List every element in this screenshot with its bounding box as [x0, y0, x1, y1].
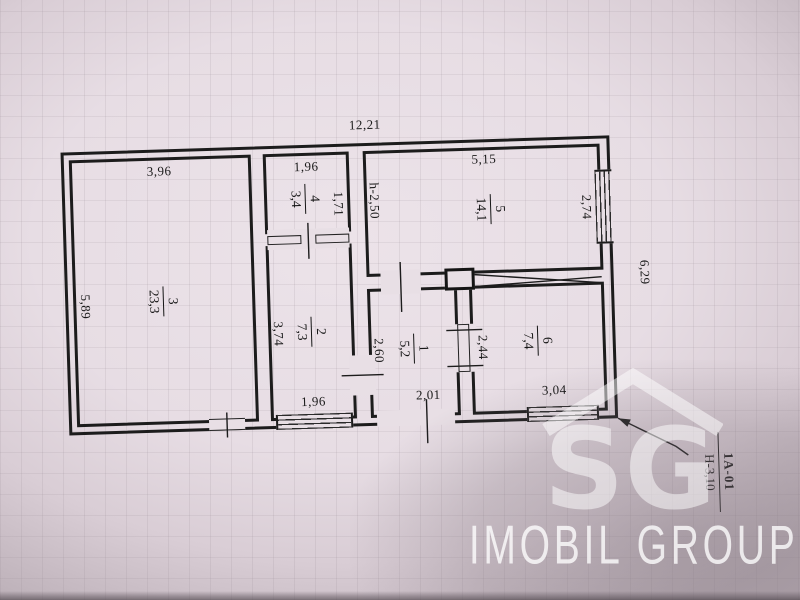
dim-room5-width: 5,15: [471, 151, 496, 168]
room1-bottom-door: [377, 408, 455, 426]
room2-label: 2 7,3: [294, 316, 328, 347]
room1-room6-door-jamb: [457, 324, 471, 372]
fraction-bar: [413, 334, 415, 364]
floor-plan: 12,21 3,96 1,96 5,15 1,96 2,01 3,04 5,89…: [17, 90, 782, 553]
room1-label: 1 5,2: [397, 333, 431, 364]
fraction-bar: [490, 194, 492, 224]
room6-bottom-window: [527, 405, 599, 422]
fraction-bar: [304, 184, 306, 214]
annotation-arrowhead: [618, 418, 631, 427]
floor-plan-photo: { "colors": { "ink": "#1c1c1c", "paper":…: [0, 0, 800, 600]
dim-room1-door: 2,01: [416, 387, 441, 404]
room4-area: 3,4: [288, 191, 303, 208]
dim-ceiling-height: h-2,50: [366, 182, 383, 219]
fraction-bar: [310, 317, 312, 347]
room1-top-door-gap: [380, 269, 421, 294]
room3-label: 3 23,3: [146, 286, 180, 317]
photo-bottom-edge: [0, 591, 800, 600]
dim-room2-height: 3,74: [270, 321, 287, 346]
room3-bottom-window: [209, 418, 245, 431]
room6-area: 7,4: [521, 332, 536, 349]
fraction-bar: [162, 286, 164, 316]
room1-number: 1: [416, 345, 430, 352]
fraction-bar: [537, 326, 539, 356]
room5-label: 5 14,1: [473, 194, 507, 225]
dim-room2-window: 1,96: [301, 393, 326, 410]
room4-label: 4 3,4: [288, 183, 322, 214]
room6-number: 6: [540, 337, 554, 344]
plan-reference-annotation: 1A-01 H-3,10: [701, 432, 737, 513]
room3-number: 3: [166, 298, 180, 305]
dim-room4-height: 1,71: [330, 191, 347, 216]
room5-area: 14,1: [473, 197, 488, 221]
room4-room2-door-jamb-left: [267, 235, 301, 245]
dim-total-height: 6,29: [636, 260, 653, 285]
dim-room6-window: 3,04: [542, 382, 567, 399]
room3-area: 23,3: [146, 290, 161, 314]
annotation-leader-line: [618, 416, 688, 457]
room4-number: 4: [307, 195, 321, 202]
dim-room4-width: 1,96: [293, 158, 318, 175]
room2-bottom-window: [276, 413, 353, 430]
plan-reference-number: 1A-01: [721, 452, 736, 491]
building-height-note: H-3,10: [702, 454, 717, 491]
room2-number: 2: [314, 328, 328, 335]
annotation-bar: [717, 432, 721, 512]
wall-pier: [444, 268, 475, 291]
dim-total-width: 12,21: [349, 117, 381, 134]
dim-room6-height: 2,44: [474, 335, 491, 360]
room1-area: 5,2: [397, 340, 412, 357]
room6-label: 6 7,4: [521, 325, 555, 356]
room5-number: 5: [493, 205, 507, 212]
room4-room2-door-jamb-right: [315, 234, 349, 244]
room2-area: 7,3: [294, 323, 309, 340]
dim-room5-window: 2,74: [578, 194, 595, 219]
dim-room1-height: 2,60: [371, 338, 388, 363]
dim-room3-width: 3,96: [147, 163, 172, 180]
room5-right-window: [594, 169, 613, 243]
dim-room3-height: 5,89: [77, 294, 94, 319]
